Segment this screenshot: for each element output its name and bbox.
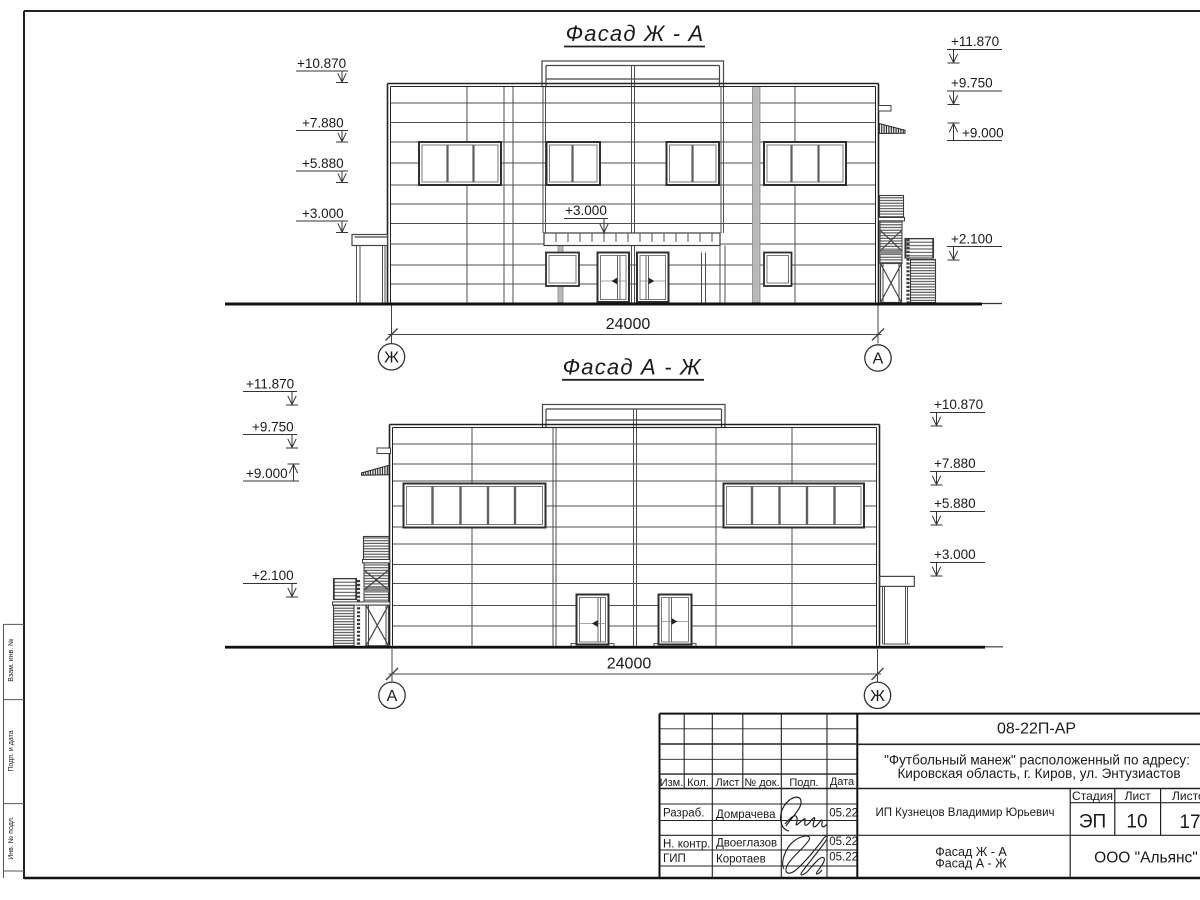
- svg-text:Фасад А - Ж: Фасад А - Ж: [563, 355, 702, 380]
- svg-text:Н. контр.: Н. контр.: [663, 839, 710, 851]
- svg-text:ЭП: ЭП: [1079, 812, 1106, 833]
- svg-text:24000: 24000: [607, 656, 652, 673]
- svg-text:А: А: [873, 351, 884, 368]
- svg-text:Дата: Дата: [830, 776, 855, 788]
- svg-text:А: А: [387, 688, 398, 705]
- svg-text:17: 17: [1179, 812, 1200, 833]
- svg-text:+9.000: +9.000: [962, 126, 1004, 141]
- svg-text:+5.880: +5.880: [934, 496, 976, 511]
- svg-text:+10.870: +10.870: [934, 397, 983, 412]
- svg-text:+2.100: +2.100: [951, 232, 993, 247]
- svg-text:Листов: Листов: [1172, 789, 1200, 803]
- svg-text:Кол.: Кол.: [687, 777, 709, 789]
- svg-text:№ док.: № док.: [744, 777, 779, 789]
- svg-text:+9.750: +9.750: [252, 420, 294, 435]
- svg-text:+5.880: +5.880: [302, 156, 344, 171]
- svg-text:Стадия: Стадия: [1072, 789, 1113, 803]
- svg-text:Инв. № подл.: Инв. № подл.: [8, 816, 15, 860]
- svg-text:Взам. инв. №: Взам. инв. №: [8, 638, 15, 681]
- svg-text:+9.750: +9.750: [951, 76, 993, 91]
- svg-text:Лист: Лист: [1125, 789, 1152, 803]
- svg-text:+3.000: +3.000: [302, 206, 344, 221]
- svg-text:+10.870: +10.870: [297, 56, 346, 71]
- svg-text:Фасад Ж - А: Фасад Ж - А: [566, 21, 705, 46]
- svg-text:Подп. и дата: Подп. и дата: [8, 730, 15, 771]
- svg-text:ГИП: ГИП: [663, 853, 686, 865]
- svg-text:+11.870: +11.870: [951, 34, 999, 49]
- svg-text:10: 10: [1126, 812, 1147, 833]
- svg-text:08-22П-АР: 08-22П-АР: [997, 721, 1076, 738]
- svg-text:Изм.: Изм.: [660, 777, 684, 789]
- svg-text:05.22: 05.22: [829, 852, 858, 864]
- svg-text:ООО "Альянс": ООО "Альянс": [1094, 850, 1198, 867]
- svg-text:ИП Кузнецов Владимир Юрьевич: ИП Кузнецов Владимир Юрьевич: [875, 807, 1054, 819]
- svg-text:+9.000: +9.000: [246, 466, 288, 481]
- svg-text:+2.100: +2.100: [252, 568, 294, 583]
- svg-text:Разраб.: Разраб.: [663, 808, 704, 820]
- svg-text:+7.880: +7.880: [934, 456, 976, 471]
- svg-text:Двоеглазов: Двоеглазов: [716, 838, 777, 850]
- svg-text:24000: 24000: [606, 316, 651, 333]
- svg-text:+3.000: +3.000: [565, 203, 607, 218]
- svg-text:Коротаев: Коротаев: [716, 854, 766, 866]
- svg-text:Подп.: Подп.: [789, 777, 818, 789]
- svg-text:Кировская область, г. Киров, у: Кировская область, г. Киров, ул. Энтузиа…: [897, 766, 1180, 781]
- svg-text:Ж: Ж: [870, 688, 885, 705]
- svg-text:Фасад А - Ж: Фасад А - Ж: [935, 857, 1007, 871]
- svg-text:+11.870: +11.870: [246, 377, 294, 392]
- svg-text:Домрачева: Домрачева: [716, 809, 776, 821]
- svg-text:+7.880: +7.880: [302, 116, 344, 131]
- svg-text:05.22: 05.22: [829, 836, 858, 848]
- svg-text:+3.000: +3.000: [934, 547, 976, 562]
- svg-text:05.22: 05.22: [829, 808, 858, 820]
- svg-text:Лист: Лист: [716, 777, 740, 789]
- svg-text:Ж: Ж: [384, 350, 399, 367]
